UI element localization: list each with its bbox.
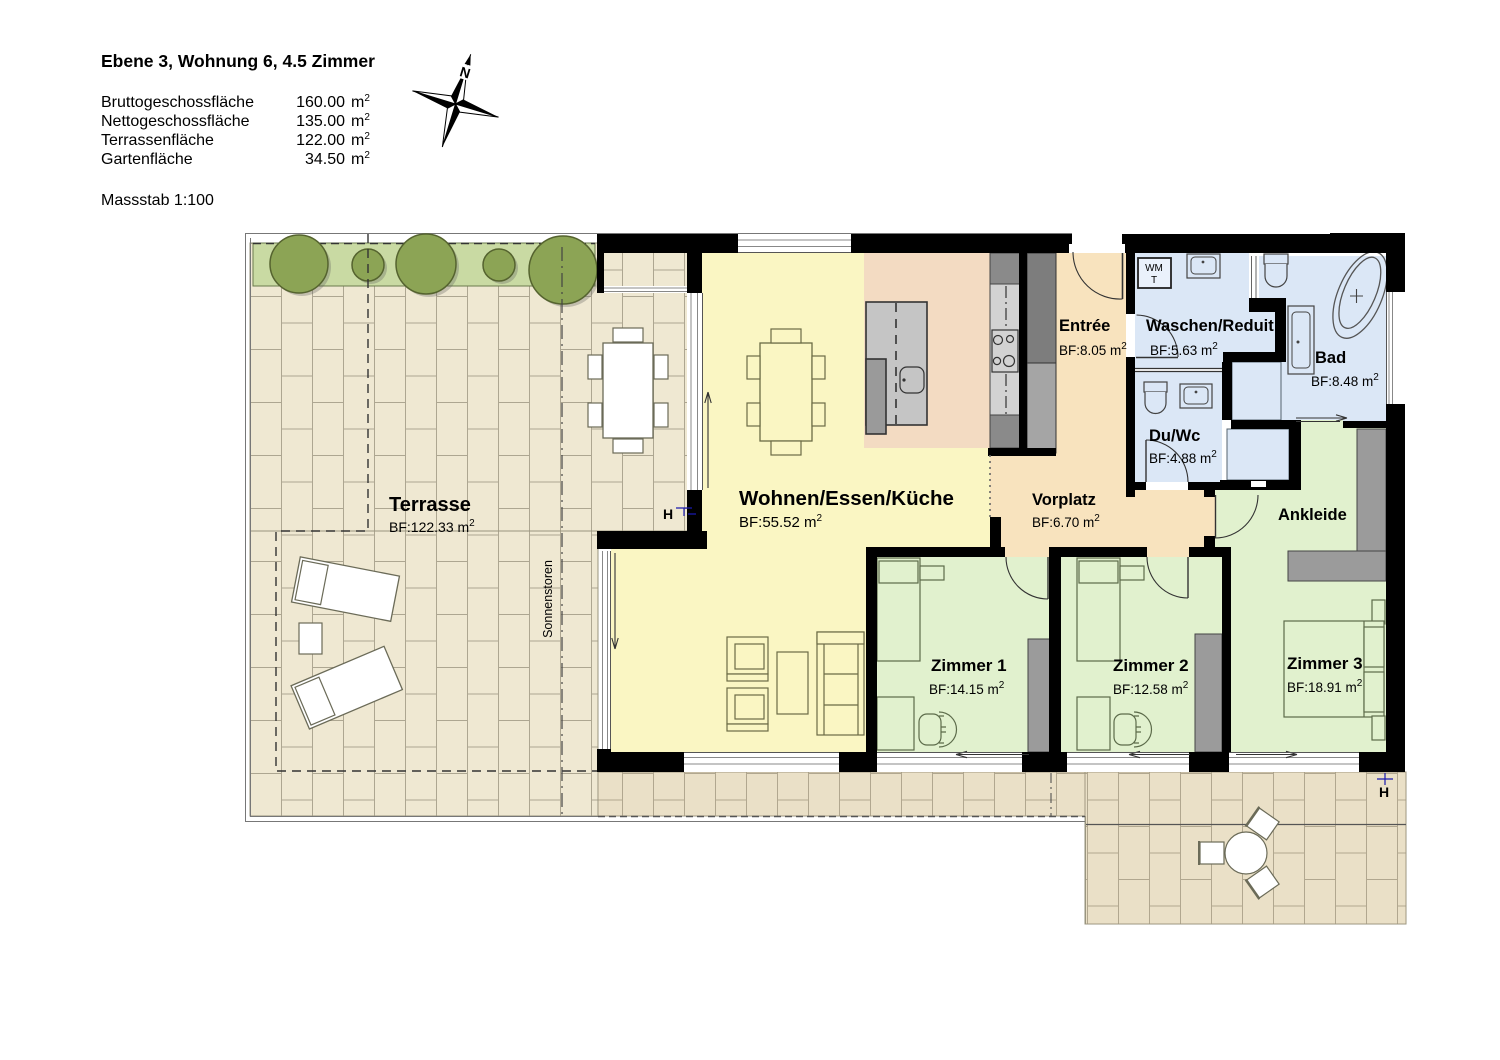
svg-text:BF:5.63 m2: BF:5.63 m2 [1150,341,1218,358]
svg-text:WM: WM [1145,263,1163,274]
svg-text:H: H [663,506,673,522]
svg-text:BF:55.52 m2: BF:55.52 m2 [739,513,823,531]
svg-text:Ebene 3, Wohnung 6, 4.5 Zimmer: Ebene 3, Wohnung 6, 4.5 Zimmer [101,51,375,71]
svg-text:Zimmer 3: Zimmer 3 [1287,654,1363,673]
svg-text:Gartenfläche: Gartenfläche [101,151,193,168]
svg-text:160.00: 160.00 [296,94,345,111]
svg-text:Zimmer 1: Zimmer 1 [931,656,1007,675]
svg-text:Bruttogeschossfläche: Bruttogeschossfläche [101,94,254,111]
svg-text:Du/Wc: Du/Wc [1149,427,1200,445]
svg-text:Terrassenfläche: Terrassenfläche [101,132,214,149]
svg-text:Waschen/Reduit: Waschen/Reduit [1146,317,1274,335]
svg-text:BF:12.58 m2: BF:12.58 m2 [1113,680,1189,697]
svg-text:BF:8.48 m2: BF:8.48 m2 [1311,372,1379,389]
svg-text:BF:6.70 m2: BF:6.70 m2 [1032,513,1100,530]
svg-text:BF:8.05 m2: BF:8.05 m2 [1059,341,1127,358]
svg-text:T: T [1151,275,1157,286]
svg-text:BF:14.15 m2: BF:14.15 m2 [929,680,1005,697]
svg-text:BF:18.91 m2: BF:18.91 m2 [1287,678,1363,695]
svg-text:BF:122.33 m2: BF:122.33 m2 [389,518,475,535]
svg-text:Terrasse: Terrasse [389,494,471,516]
svg-text:Entrée: Entrée [1059,317,1110,335]
svg-text:Massstab 1:100: Massstab 1:100 [101,192,214,209]
svg-text:BF:4.88 m2: BF:4.88 m2 [1149,449,1217,466]
svg-text:Zimmer 2: Zimmer 2 [1113,656,1189,675]
svg-text:135.00: 135.00 [296,113,345,130]
svg-text:Ankleide: Ankleide [1278,506,1347,524]
svg-text:122.00: 122.00 [296,132,345,149]
svg-text:Sonnenstoren: Sonnenstoren [541,560,555,638]
svg-text:Nettogeschossfläche: Nettogeschossfläche [101,113,250,130]
svg-text:34.50: 34.50 [305,151,345,168]
svg-text:H: H [1379,784,1389,800]
svg-text:Wohnen/Essen/Küche: Wohnen/Essen/Küche [739,487,954,510]
svg-text:Bad: Bad [1315,349,1346,367]
svg-text:Vorplatz: Vorplatz [1032,491,1096,509]
